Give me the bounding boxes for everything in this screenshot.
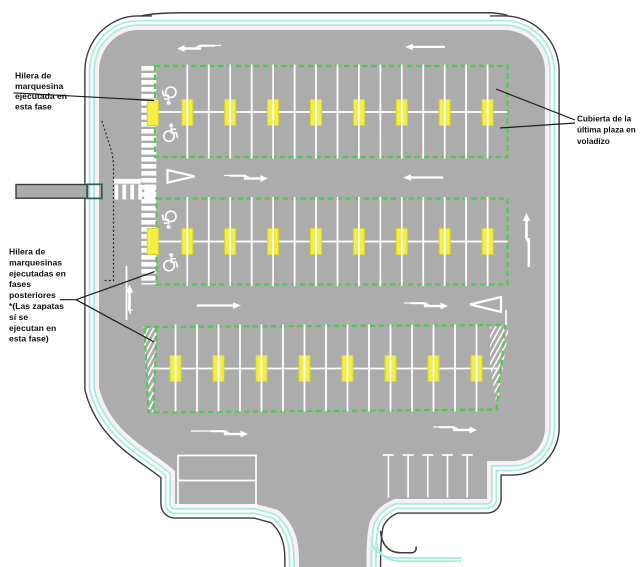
svg-text:Cubierta de laúltima plaza env: Cubierta de laúltima plaza envoladizo [577, 115, 636, 146]
svg-text:Hilera demarquesinasejecutadas: Hilera demarquesinasejecutadas enfasespo… [9, 247, 66, 344]
svg-text:Hilera demarquesinaejecutada e: Hilera demarquesinaejecutada enesta fase [15, 71, 67, 112]
